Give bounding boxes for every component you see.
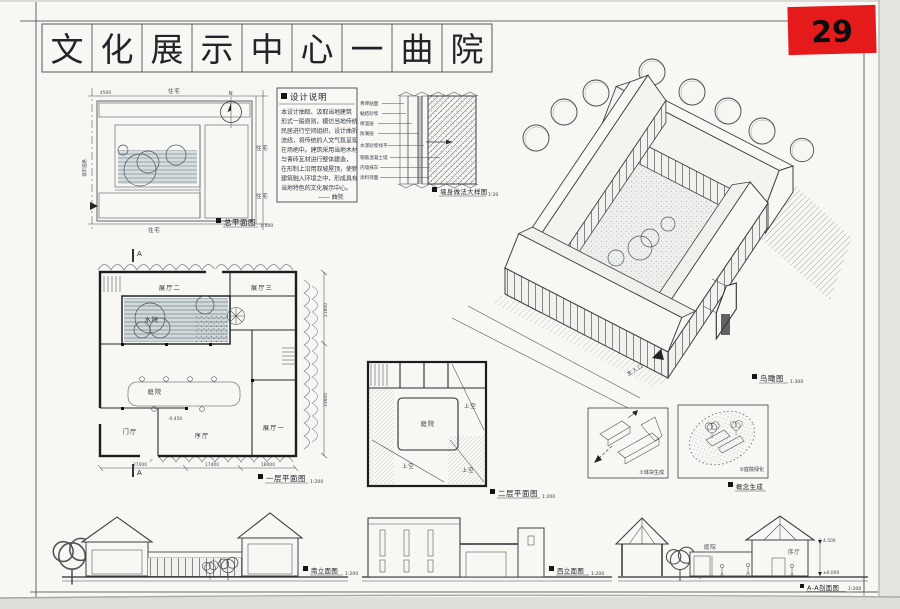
west-elevation-caption: 西立面图 1:200: [549, 566, 604, 577]
svg-text:1:200: 1:200: [848, 586, 861, 592]
room-label-void: 上空: [402, 462, 414, 470]
section-court-label: 庭院: [704, 543, 716, 551]
analysis-box2-label: ②庭院绿化: [740, 466, 764, 473]
caption-square-icon: [281, 93, 287, 99]
notes-signature: —— 曲院: [318, 193, 343, 201]
title-char-2: 化: [101, 30, 134, 69]
svg-text:A: A: [137, 469, 142, 477]
north-compass: N: [221, 91, 242, 128]
north-label: N: [229, 91, 234, 97]
notes-line: 形式一般原则，模仿当地传统: [281, 118, 358, 126]
south-elevation: 南立面图 1:200: [53, 513, 358, 585]
stair: [282, 348, 296, 364]
svg-text:概念生成: 概念生成: [736, 482, 763, 491]
svg-text:二层平面图: 二层平面图: [498, 489, 538, 498]
site-plan-caption: 总平面图 1:500: [216, 218, 273, 229]
second-floor-plan-caption: 二层平面图 1:200: [490, 489, 555, 500]
room-label-void: 上空: [464, 402, 476, 410]
svg-text:黏结砂浆: 黏结砂浆: [360, 110, 379, 117]
second-floor-plan: 庭院 上空 上空 上空 二层平面图 1:200: [368, 362, 555, 500]
title-block: 文 化 展 示 中 心 一 曲 院: [42, 24, 492, 72]
svg-text:南立面图: 南立面图: [311, 566, 338, 575]
analysis-diagrams: ①体块生成 ②庭院绿化 概念生成: [588, 401, 768, 491]
svg-text:1:500: 1:500: [260, 223, 273, 229]
svg-text:1:200: 1:200: [345, 571, 358, 577]
page-number: 29: [811, 14, 854, 50]
level-zero: ±0.000: [823, 570, 839, 576]
site-label-road: 城市道路: [81, 159, 88, 177]
svg-text:涂料饰面: 涂料饰面: [360, 174, 379, 181]
south-elevation-caption: 南立面图 1:200: [303, 566, 358, 577]
section-aa-caption: A-A剖面图 1:200: [800, 583, 861, 592]
svg-text:A: A: [137, 250, 142, 258]
svg-text:18000: 18000: [261, 462, 275, 468]
room-label-courtyard2: 庭院: [421, 420, 436, 428]
section-hall-label: 序厅: [788, 548, 800, 556]
svg-text:27000: 27000: [133, 462, 147, 468]
svg-text:A-A剖面图: A-A剖面图: [807, 583, 839, 592]
room-label-lobby: 序厅: [195, 432, 210, 440]
stair: [104, 276, 120, 292]
svg-text:1:20: 1:20: [488, 192, 498, 198]
svg-text:1:300: 1:300: [790, 379, 803, 385]
first-floor-plan: 展厅二 展厅三 水院 庭院 门厅 序厅 展厅一 -0.450 A A 27000…: [97, 249, 329, 485]
room-label-courtyard: 庭院: [148, 388, 163, 396]
room-label-water-court: 水院: [145, 316, 160, 324]
wall-detail-caption: 墙身做法大样图 1:20: [432, 187, 498, 198]
room-label-hall2: 展厅二: [159, 285, 181, 292]
notes-line: 在场地中。建筑采用当地木材: [281, 146, 358, 154]
site-label-bottom: 住宅: [148, 226, 160, 234]
page-number-stamp: 29: [787, 5, 876, 55]
room-label-hall1: 展厅一: [263, 425, 285, 432]
svg-text:墙身做法大样图: 墙身做法大样图: [440, 187, 488, 196]
drawing-sheet: 文 化 展 示 中 心 一 曲 院 29 N: [0, 0, 900, 609]
site-plan: N 4500 住宅 住宅 住宅 住宅 城市道路 总平面图 1:500: [81, 87, 273, 234]
svg-text:水泥砂浆找平: 水泥砂浆找平: [360, 142, 388, 149]
title-char-4: 示: [201, 30, 234, 69]
stair: [371, 364, 387, 386]
axonometric-view: 主入口 鸟瞰图 1:300: [452, 59, 852, 408]
notes-line: 与青砖瓦材进行整体建造，: [281, 156, 352, 164]
room-label-foyer: 门厅: [123, 428, 138, 436]
site-label-top: 住宅: [168, 87, 180, 95]
notes-line: 在形制上沿用双坡屋顶，使新: [281, 165, 358, 173]
design-notes-title: 设计说明: [290, 92, 328, 102]
title-char-6: 心: [301, 30, 334, 69]
first-floor-plan-caption: 一层平面图 1:200: [258, 474, 323, 485]
svg-text:鸟瞰图: 鸟瞰图: [760, 374, 784, 383]
room-label-hall3: 展厅三: [251, 285, 273, 292]
title-char-8: 曲: [401, 30, 434, 69]
title-char-5: 中: [251, 30, 284, 69]
svg-text:内墙抹灰: 内墙抹灰: [360, 164, 379, 171]
svg-text:33600: 33600: [323, 393, 329, 407]
site-label-right-lower: 住宅: [256, 192, 268, 200]
axon-caption: 鸟瞰图 1:300: [752, 374, 803, 385]
notes-line: 流线，将传统的人文气氛呈现: [281, 137, 358, 145]
spiral-stair: [228, 308, 245, 325]
svg-text:1:200: 1:200: [591, 571, 604, 577]
svg-text:21600: 21600: [323, 303, 329, 317]
svg-text:1:200: 1:200: [310, 479, 323, 485]
level-label: -0.450: [168, 416, 182, 422]
room-label-void: 上空: [462, 466, 474, 474]
notes-line: 本设计抽取、汲取当地建筑: [281, 108, 352, 116]
wall-detail: 青砖贴面 黏结砂浆 保温层 防潮层 水泥砂浆找平 钢筋混凝土墙 内墙抹灰 涂料饰…: [360, 92, 498, 198]
svg-text:钢筋混凝土墙: 钢筋混凝土墙: [360, 154, 388, 161]
svg-text:保温层: 保温层: [360, 120, 374, 127]
section-mark-top: A: [133, 249, 142, 262]
notes-line: 建筑融入环境之中，形成具有: [281, 175, 358, 183]
west-elevation: 西立面图 1:200: [362, 518, 612, 581]
site-label-right-upper: 住宅: [256, 144, 268, 152]
svg-text:一层平面图: 一层平面图: [266, 474, 306, 483]
analysis-box1-label: ①体块生成: [640, 469, 664, 476]
svg-text:西立面图: 西立面图: [557, 566, 584, 575]
design-notes: 设计说明 本设计抽取、汲取当地建筑 形式一般原则，模仿当地传统 民居进行空间组织…: [277, 88, 358, 202]
title-char-1: 文: [51, 30, 84, 69]
svg-text:总平面图: 总平面图: [224, 218, 256, 227]
site-dim: 4500: [100, 90, 111, 96]
svg-text:1:200: 1:200: [542, 494, 555, 500]
svg-text:17400: 17400: [205, 462, 219, 468]
sheet-canvas: 文 化 展 示 中 心 一 曲 院 29 N: [0, 0, 900, 609]
notes-line: 民居进行空间组织，设计曲折: [281, 127, 358, 135]
section-aa: 庭院 序厅 4.500 ±0.000 A-A剖面图 1:200: [616, 516, 868, 592]
title-char-7: 一: [351, 30, 384, 69]
title-char-3: 展: [151, 30, 184, 69]
title-char-9: 院: [451, 30, 484, 69]
level-top: 4.500: [823, 538, 836, 544]
svg-text:防潮层: 防潮层: [360, 130, 374, 137]
svg-text:青砖贴面: 青砖贴面: [360, 100, 379, 107]
analysis-caption: 概念生成: [728, 482, 766, 491]
notes-line: 当地特色的文化展示中心。: [281, 184, 352, 192]
